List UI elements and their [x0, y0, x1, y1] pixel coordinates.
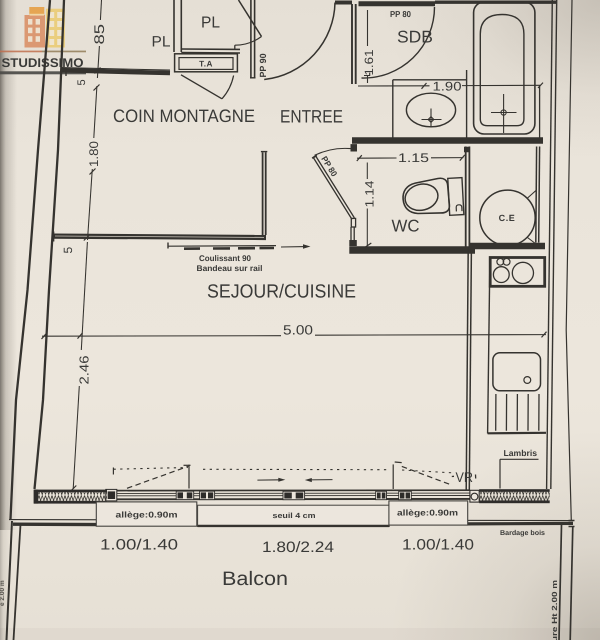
- svg-text:1.90: 1.90: [433, 80, 462, 94]
- svg-text:seuil 4 cm: seuil 4 cm: [273, 511, 316, 520]
- svg-text:1.00/1.40: 1.00/1.40: [100, 537, 178, 554]
- svg-text:allège:0.90m: allège:0.90m: [397, 508, 458, 518]
- svg-text:VR: VR: [456, 469, 474, 485]
- svg-text:1.80: 1.80: [87, 141, 101, 167]
- svg-text:e 2.00 m: e 2.00 m: [0, 580, 6, 606]
- svg-text:ure Ht 2.00 m: ure Ht 2.00 m: [550, 580, 559, 640]
- svg-text:5.00: 5.00: [283, 323, 313, 338]
- svg-text:T.A: T.A: [199, 59, 213, 68]
- svg-text:SEJOUR/CUISINE: SEJOUR/CUISINE: [207, 282, 356, 303]
- svg-text:5: 5: [61, 247, 75, 254]
- svg-text:1.80/2.24: 1.80/2.24: [262, 539, 334, 556]
- svg-text:ENTREE: ENTREE: [280, 107, 343, 127]
- svg-text:C.E: C.E: [499, 213, 516, 223]
- svg-text:2.46: 2.46: [77, 356, 92, 385]
- svg-text:Bandeau sur rail: Bandeau sur rail: [197, 264, 263, 273]
- svg-text:SDB: SDB: [397, 28, 433, 47]
- svg-text:85: 85: [91, 24, 107, 45]
- svg-text:PP 80: PP 80: [390, 9, 411, 19]
- svg-text:WC: WC: [392, 217, 420, 236]
- svg-text:Balcon: Balcon: [222, 568, 288, 590]
- svg-text:COIN MONTAGNE: COIN MONTAGNE: [113, 106, 255, 126]
- svg-text:PP 90: PP 90: [258, 54, 268, 78]
- svg-text:1.61: 1.61: [362, 49, 376, 75]
- svg-text:5: 5: [76, 79, 88, 85]
- svg-text:1.15: 1.15: [398, 151, 429, 165]
- svg-text:Lambris: Lambris: [504, 448, 538, 458]
- svg-text:Coulissant 90: Coulissant 90: [199, 254, 251, 263]
- svg-text:1.00/1.40: 1.00/1.40: [402, 537, 474, 554]
- svg-text:Bardage bois: Bardage bois: [500, 529, 545, 537]
- svg-text:1.14: 1.14: [363, 180, 377, 207]
- svg-text:allège:0.90m: allège:0.90m: [116, 510, 178, 520]
- svg-text:PL: PL: [201, 15, 220, 32]
- svg-text:PL: PL: [152, 34, 171, 51]
